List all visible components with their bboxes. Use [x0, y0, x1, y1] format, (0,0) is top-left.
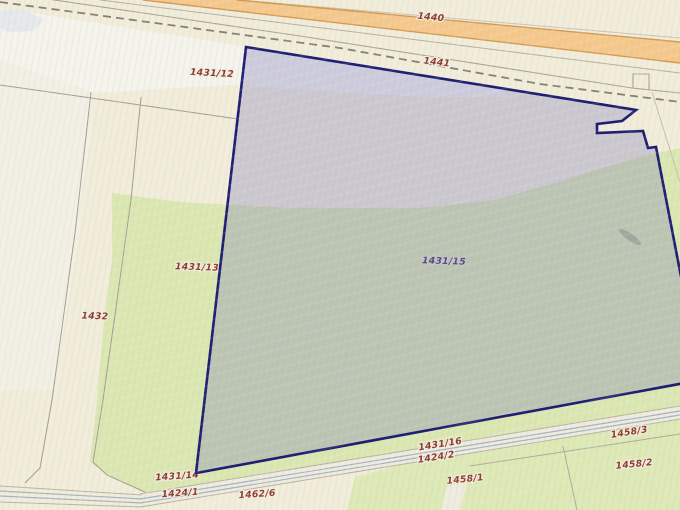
- map-canvas[interactable]: 1440 1441 1431/12 1431/13 1432 1431/16 1…: [0, 0, 680, 510]
- label-parcel-1432: 1432: [81, 311, 108, 323]
- label-parcel-1431-12: 1431/12: [190, 67, 234, 80]
- label-parcel-1431-13: 1431/13: [175, 261, 219, 274]
